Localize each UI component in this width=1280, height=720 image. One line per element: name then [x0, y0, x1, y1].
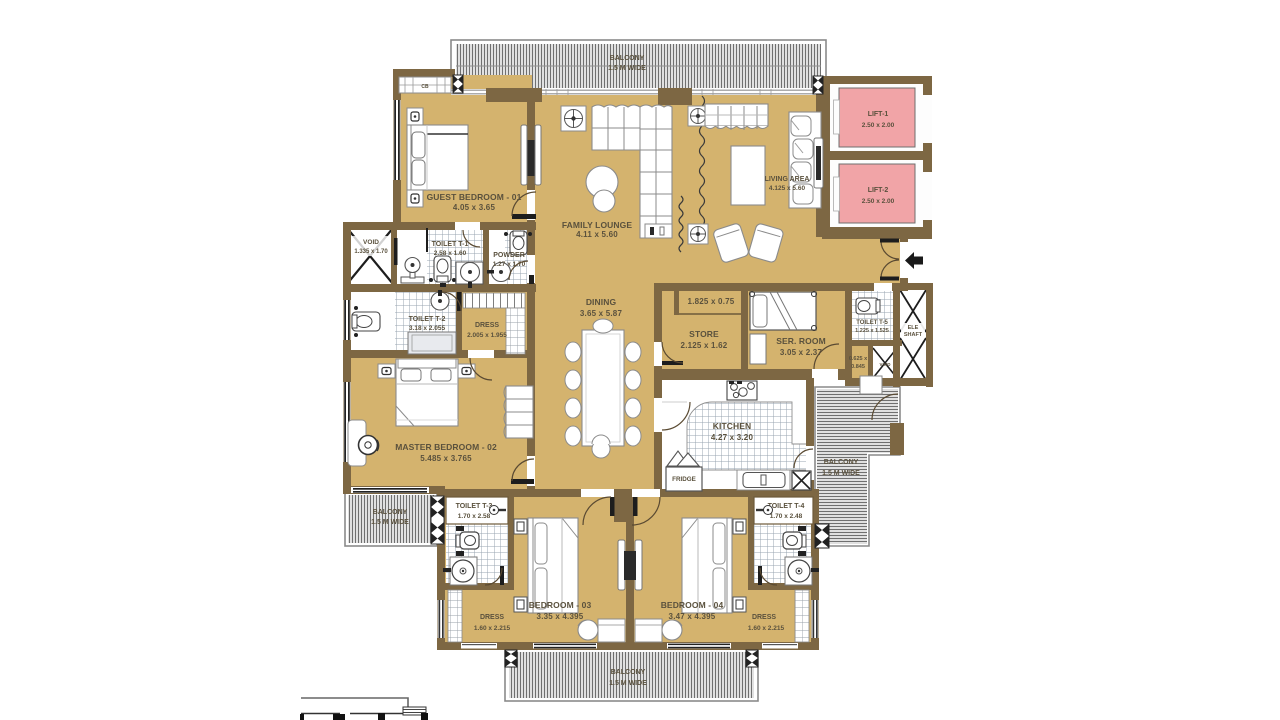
- svg-text:0.845: 0.845: [851, 364, 865, 370]
- svg-text:1.5 M WIDE: 1.5 M WIDE: [822, 470, 860, 477]
- svg-text:1.5 M WIDE: 1.5 M WIDE: [371, 519, 409, 526]
- svg-text:3.05 x 2.37: 3.05 x 2.37: [780, 348, 823, 357]
- svg-text:DRESS: DRESS: [752, 614, 776, 621]
- svg-text:4.27 x 3.20: 4.27 x 3.20: [711, 433, 754, 442]
- svg-text:VOID: VOID: [363, 239, 379, 246]
- svg-text:3.65 x 5.87: 3.65 x 5.87: [580, 309, 623, 318]
- svg-text:BALCONY: BALCONY: [611, 669, 646, 676]
- svg-text:3.47 x 4.395: 3.47 x 4.395: [669, 612, 716, 621]
- svg-text:3.18 x 2.055: 3.18 x 2.055: [409, 325, 446, 332]
- svg-text:2.50 x 2.00: 2.50 x 2.00: [862, 198, 895, 205]
- svg-text:DRESS: DRESS: [475, 322, 499, 329]
- svg-text:LIFT-2: LIFT-2: [868, 187, 889, 194]
- svg-text:1.825 x 0.75: 1.825 x 0.75: [688, 297, 735, 306]
- svg-text:1.70 x 2.48: 1.70 x 2.48: [770, 513, 803, 520]
- svg-text:2.50 x 2.00: 2.50 x 2.00: [862, 122, 895, 129]
- svg-text:TOILET T-1: TOILET T-1: [432, 241, 469, 248]
- svg-text:2.58 x 1.60: 2.58 x 1.60: [434, 250, 467, 257]
- svg-text:4.05 x 3.65: 4.05 x 3.65: [453, 203, 496, 212]
- svg-text:DINING: DINING: [586, 297, 617, 307]
- svg-text:1.70 x 2.58: 1.70 x 2.58: [458, 513, 491, 520]
- svg-text:1.5 M WIDE: 1.5 M WIDE: [609, 680, 647, 687]
- svg-text:1.335 x 1.70: 1.335 x 1.70: [354, 249, 388, 255]
- svg-text:POWDER: POWDER: [493, 252, 525, 259]
- svg-text:SER. ROOM: SER. ROOM: [776, 336, 826, 346]
- svg-text:2.125 x 1.62: 2.125 x 1.62: [681, 341, 728, 350]
- svg-text:5.485 x 3.765: 5.485 x 3.765: [420, 454, 472, 463]
- svg-text:BALCONY: BALCONY: [824, 459, 859, 466]
- svg-text:GUEST BEDROOM - 01: GUEST BEDROOM - 01: [427, 192, 522, 202]
- svg-text:DRESS: DRESS: [480, 614, 504, 621]
- svg-text:KITCHEN: KITCHEN: [713, 421, 751, 431]
- svg-text:1.225 x 1.525: 1.225 x 1.525: [855, 328, 889, 334]
- svg-text:TOILET T-2: TOILET T-2: [409, 316, 446, 323]
- svg-text:3.35 x 4.395: 3.35 x 4.395: [537, 612, 584, 621]
- svg-text:1.60 x 2.215: 1.60 x 2.215: [474, 625, 511, 632]
- svg-text:4.125 x 5.60: 4.125 x 5.60: [769, 185, 806, 192]
- svg-text:BALCONY: BALCONY: [373, 509, 408, 516]
- svg-text:BALCONY: BALCONY: [610, 55, 645, 62]
- svg-text:STORE: STORE: [689, 329, 719, 339]
- svg-text:TOILET T-5: TOILET T-5: [856, 320, 888, 326]
- svg-text:TOILET T-3: TOILET T-3: [456, 503, 493, 510]
- svg-text:0.625 x: 0.625 x: [849, 356, 868, 362]
- svg-text:VOID: VOID: [879, 362, 891, 367]
- svg-text:CB: CB: [421, 84, 429, 90]
- svg-text:FRIDGE: FRIDGE: [672, 476, 696, 483]
- svg-text:FAMILY LOUNGE: FAMILY LOUNGE: [562, 220, 632, 230]
- svg-text:BEDROOM - 03: BEDROOM - 03: [529, 600, 592, 610]
- svg-text:ELE: ELE: [908, 325, 919, 331]
- svg-text:LIFT-1: LIFT-1: [868, 111, 889, 118]
- svg-text:SHAFT: SHAFT: [904, 332, 923, 338]
- svg-text:1.60 x 2.215: 1.60 x 2.215: [748, 625, 785, 632]
- svg-text:4.11 x 5.60: 4.11 x 5.60: [576, 230, 618, 239]
- svg-text:BEDROOM - 04: BEDROOM - 04: [661, 600, 724, 610]
- svg-text:1.5 M WIDE: 1.5 M WIDE: [608, 65, 646, 72]
- svg-text:LIVING AREA: LIVING AREA: [765, 176, 810, 183]
- svg-text:MASTER BEDROOM - 02: MASTER BEDROOM - 02: [395, 442, 497, 452]
- svg-text:2.005 x 1.955: 2.005 x 1.955: [467, 332, 507, 339]
- svg-text:TOILET T-4: TOILET T-4: [768, 503, 805, 510]
